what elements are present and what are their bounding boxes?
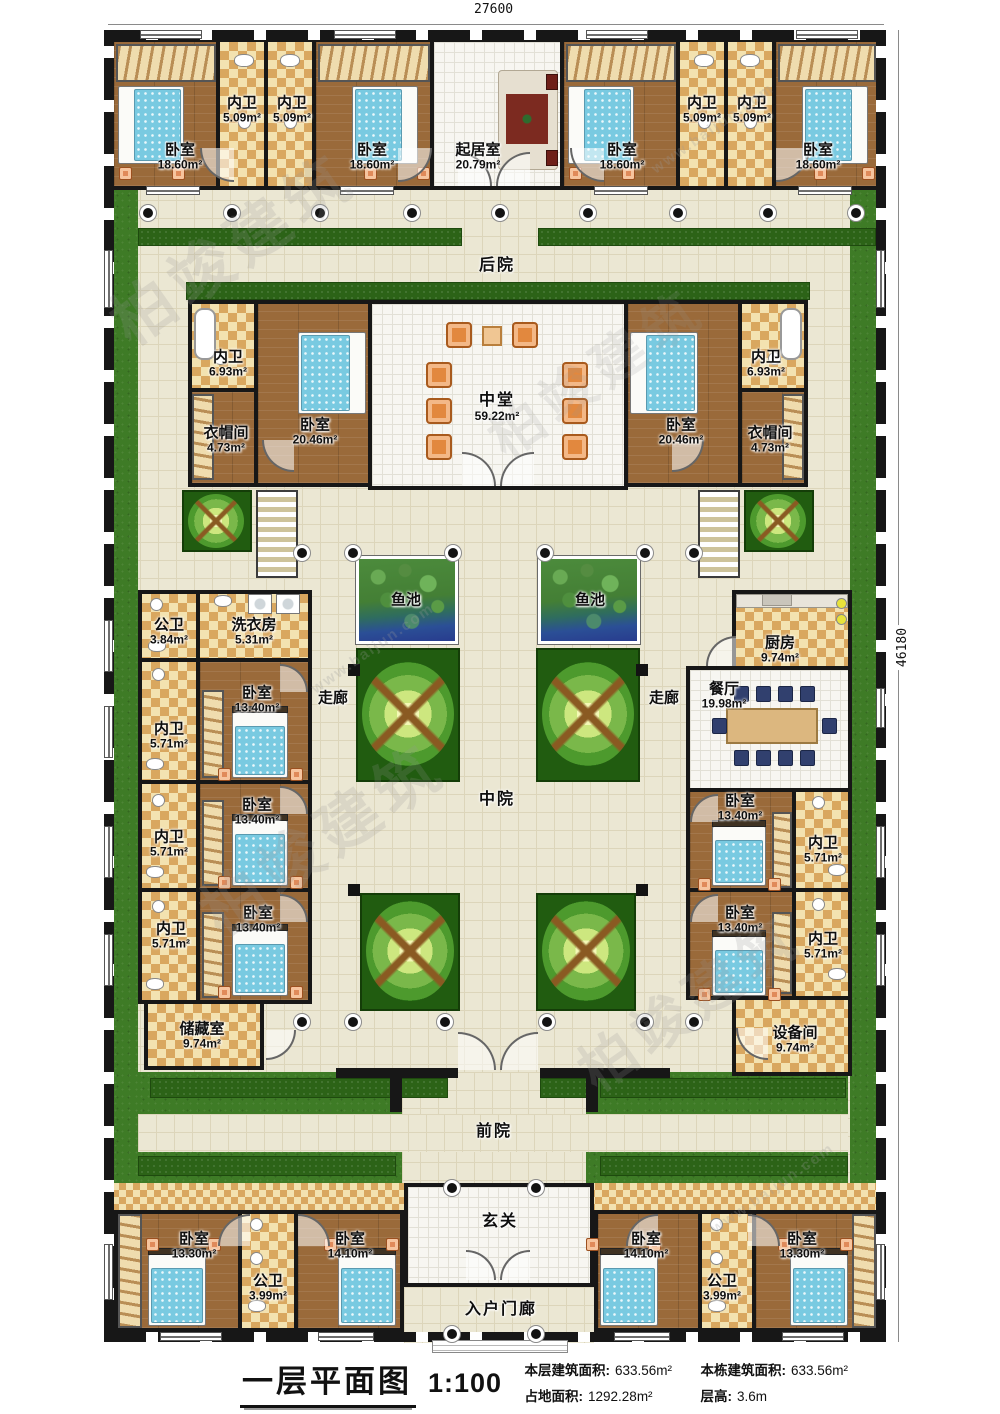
column-dot: [224, 205, 240, 221]
rug: [506, 94, 548, 144]
room-label-bedroom: 卧室14.10m²: [328, 1230, 373, 1261]
courtyard-wall: [540, 1068, 670, 1078]
area-name: 玄关: [482, 1213, 518, 1231]
quilt: [341, 1268, 393, 1323]
room-name: 卧室: [235, 796, 280, 813]
column-dot: [294, 1014, 310, 1030]
window: [104, 934, 113, 986]
window: [614, 1332, 670, 1341]
room-name: 卧室: [158, 141, 203, 158]
stat-label: 层高:: [701, 1389, 733, 1404]
room-label-bath: 内卫5.71m²: [804, 834, 842, 865]
column-dot: [312, 205, 328, 221]
wardrobe: [118, 1214, 142, 1328]
nightstand: [218, 986, 231, 999]
room-name: 设备间: [772, 1024, 817, 1041]
armchair: [562, 434, 588, 460]
dining-chair: [800, 686, 815, 702]
stairs: [256, 490, 298, 578]
room-label-dining: 餐厅19.98m²: [702, 680, 747, 711]
basin-icon: [812, 796, 825, 809]
quilt: [235, 944, 285, 993]
room-name: 中堂: [475, 392, 520, 410]
basin-icon: [250, 1252, 263, 1265]
nightstand: [290, 876, 303, 889]
window: [586, 30, 648, 39]
nightstand: [698, 988, 711, 1001]
room-label-bath: 内卫5.71m²: [152, 920, 190, 951]
room-label-bedroom: 卧室18.60m²: [600, 141, 645, 172]
room-area: 13.30m²: [780, 1248, 825, 1262]
room-area: 5.09m²: [273, 112, 311, 126]
room-label-bedroom: 卧室20.46m²: [659, 416, 704, 447]
column-dot: [686, 545, 702, 561]
column-dot: [294, 545, 310, 561]
window: [318, 1332, 374, 1341]
room-label-bedroom: 卧室13.30m²: [780, 1230, 825, 1261]
yard-wall-stub: [390, 1068, 402, 1112]
window: [876, 250, 885, 308]
room-area: 9.74m²: [179, 1038, 224, 1052]
sink-icon: [740, 54, 760, 67]
toilet-icon: [146, 866, 164, 878]
column-dot: [444, 1180, 460, 1196]
window: [104, 826, 113, 878]
hedge-row: [138, 228, 462, 246]
perimeter-wall-right: [876, 30, 886, 1342]
room-area: 13.40m²: [236, 922, 281, 936]
column-square: [348, 664, 360, 676]
side-table: [546, 150, 558, 166]
room-name: 卧室: [600, 141, 645, 158]
tree-icon: [542, 662, 634, 766]
room-name: 卧室: [796, 141, 841, 158]
dimension-line-top: [108, 24, 884, 25]
wardrobe: [318, 44, 430, 82]
area-label-midyard: 中院: [479, 791, 515, 809]
wardrobe: [202, 800, 224, 886]
window: [798, 186, 852, 195]
double-bed: [600, 1254, 658, 1326]
room-area: 20.79m²: [455, 159, 500, 173]
tea-table: [482, 326, 502, 346]
room-area: 9.74m²: [772, 1042, 817, 1056]
nightstand: [768, 878, 781, 891]
column-dot: [760, 205, 776, 221]
quilt: [301, 335, 350, 411]
room-area: 5.71m²: [150, 846, 188, 860]
room-area: 5.31m²: [231, 634, 276, 648]
window: [796, 30, 858, 39]
room-label-bath: 内卫5.09m²: [223, 94, 261, 125]
room-name: 卧室: [718, 904, 763, 921]
tree-icon: [542, 901, 630, 1001]
window: [340, 186, 394, 195]
area-name: 鱼池: [575, 591, 605, 608]
room-name: 餐厅: [702, 680, 747, 697]
double-bed: [338, 1254, 396, 1326]
toilet-icon: [146, 758, 164, 770]
room-label-bedroom: 卧室13.40m²: [235, 684, 280, 715]
hedge-row: [150, 1078, 396, 1098]
room-label-bedroom: 卧室13.40m²: [718, 904, 763, 935]
stat-label: 本层建筑面积:: [525, 1363, 611, 1378]
armchair: [426, 362, 452, 388]
column-dot: [445, 545, 461, 561]
room-label-living: 起居室20.79m²: [455, 141, 500, 172]
room-area: 20.46m²: [659, 434, 704, 448]
stairs: [698, 490, 740, 578]
room-name: 储藏室: [179, 1020, 224, 1037]
room-area: 3.99m²: [703, 1290, 741, 1304]
column-dot: [492, 205, 508, 221]
tree-icon: [366, 901, 454, 1001]
dining-chair: [822, 718, 837, 734]
room-name: 卧室: [624, 1230, 669, 1247]
hedge-row: [396, 1078, 448, 1098]
quilt: [151, 1268, 203, 1323]
window: [876, 688, 885, 728]
room-name: 内卫: [223, 94, 261, 111]
tree-icon: [750, 494, 806, 548]
toilet-icon: [146, 978, 164, 990]
room-area: 4.73m²: [203, 442, 248, 456]
room-area: 18.60m²: [350, 159, 395, 173]
room-label-bath: 内卫5.09m²: [733, 94, 771, 125]
plan-scale: 1:100: [428, 1368, 502, 1399]
nightstand: [218, 768, 231, 781]
sink-icon: [234, 54, 254, 67]
room-name: 公卫: [249, 1272, 287, 1289]
room-name: 公卫: [150, 616, 188, 633]
room-name: 洗衣房: [231, 616, 276, 633]
column-dot: [528, 1326, 544, 1342]
wardrobe: [116, 44, 216, 82]
room-name: 卧室: [236, 904, 281, 921]
room-label-bedroom: 卧室13.40m²: [236, 904, 281, 935]
perimeter-wall-top: [104, 30, 886, 40]
sink-icon: [280, 54, 300, 67]
armchair: [512, 322, 538, 348]
nightstand: [768, 988, 781, 1001]
area-name: 鱼池: [391, 591, 421, 608]
stat-label: 占地面积:: [525, 1389, 584, 1404]
area-label-foyer: 玄关: [482, 1213, 518, 1231]
grass-strip-right: [850, 190, 876, 1186]
room-name: 卧室: [293, 416, 338, 433]
wardrobe: [772, 812, 792, 888]
room-area: 18.60m²: [600, 159, 645, 173]
range-hood-icon: [762, 594, 792, 606]
room-area: 6.93m²: [747, 366, 785, 380]
room-name: 卧室: [780, 1230, 825, 1247]
dining-table: [726, 708, 818, 744]
stat-value: 3.6m: [737, 1389, 767, 1404]
area-name: 入户门廊: [465, 1301, 537, 1319]
basin-icon: [152, 794, 165, 807]
room-name: 内卫: [150, 720, 188, 737]
nightstand: [146, 1238, 159, 1251]
column-dot: [444, 1326, 460, 1342]
room-name: 公卫: [703, 1272, 741, 1289]
hedge-row: [186, 282, 810, 300]
double-bed: [298, 332, 366, 414]
perimeter-wall-left: [104, 30, 114, 1342]
column-dot: [404, 205, 420, 221]
basin-icon: [812, 898, 825, 911]
caption-bar: 一层平面图1:100 本层建筑面积:633.56m² 占地面积:1292.28m…: [240, 1356, 960, 1412]
room-area: 5.71m²: [804, 852, 842, 866]
window: [594, 186, 648, 195]
nightstand: [290, 986, 303, 999]
armchair: [562, 398, 588, 424]
stove-burner-icon: [836, 598, 847, 609]
stove-burner-icon: [836, 614, 847, 625]
room-name: 内卫: [683, 94, 721, 111]
nightstand: [698, 878, 711, 891]
room-area: 9.74m²: [761, 652, 799, 666]
column-square: [636, 664, 648, 676]
quilt: [793, 1268, 845, 1323]
room-label-bedroom: 卧室13.40m²: [235, 796, 280, 827]
room-area: 5.09m²: [733, 112, 771, 126]
grass-strip-left: [112, 190, 138, 1186]
room-area: 5.71m²: [804, 948, 842, 962]
room-label-bedroom: 卧室20.46m²: [293, 416, 338, 447]
hedge-row: [600, 1156, 848, 1176]
area-name: 走廊: [318, 689, 348, 706]
washer-icon: [248, 594, 272, 614]
room-name: 内卫: [209, 348, 247, 365]
stat-label: 本栋建筑面积:: [701, 1363, 787, 1378]
room-area: 18.60m²: [158, 159, 203, 173]
basin-icon: [152, 668, 165, 681]
area-label-porch: 入户门廊: [465, 1301, 537, 1319]
hedge-row: [600, 1078, 846, 1098]
room-area: 13.40m²: [235, 814, 280, 828]
armchair: [562, 362, 588, 388]
armchair: [426, 434, 452, 460]
caption-title-wrap: 一层平面图1:100: [240, 1356, 502, 1408]
room-label-bedroom: 卧室13.30m²: [172, 1230, 217, 1261]
column-dot: [537, 545, 553, 561]
column-dot: [345, 545, 361, 561]
room-name: 衣帽间: [203, 424, 248, 441]
side-table: [546, 74, 558, 90]
armchair: [426, 398, 452, 424]
tree-icon: [362, 662, 454, 766]
room-label-bath: 内卫6.93m²: [747, 348, 785, 379]
room-area: 5.71m²: [150, 738, 188, 752]
double-bed: [712, 826, 766, 886]
area-label-corridor: 走廊: [649, 689, 679, 706]
column-dot: [528, 1180, 544, 1196]
area-name: 后院: [479, 257, 515, 275]
room-label-hall: 中堂59.22m²: [475, 392, 520, 424]
room-label-bath: 内卫5.71m²: [804, 930, 842, 961]
room-area: 4.73m²: [747, 442, 792, 456]
area-label-corridor: 走廊: [318, 689, 348, 706]
quilt: [715, 840, 763, 883]
wardrobe: [202, 690, 224, 778]
column-square: [348, 884, 360, 896]
room-area: 20.46m²: [293, 434, 338, 448]
room-area: 6.93m²: [209, 366, 247, 380]
room-label-bedroom: 卧室18.60m²: [796, 141, 841, 172]
area-label-frontyard: 前院: [476, 1123, 512, 1141]
room-area: 19.98m²: [702, 698, 747, 712]
area-label-pond: 鱼池: [575, 591, 605, 608]
room-label-bath: 内卫5.71m²: [150, 828, 188, 859]
dining-chair: [734, 750, 749, 766]
area-name: 中院: [479, 791, 515, 809]
room-label-wc: 公卫3.84m²: [150, 616, 188, 647]
double-bed: [712, 936, 766, 996]
column-dot: [637, 545, 653, 561]
stat-value: 633.56m²: [615, 1363, 672, 1378]
quilt: [235, 834, 285, 883]
wardrobe: [772, 912, 792, 994]
basin-icon: [150, 598, 163, 611]
room-area: 59.22m²: [475, 410, 520, 424]
yard-wall-stub: [586, 1068, 598, 1112]
stat-floor-height: 层高:3.6m: [701, 1385, 849, 1405]
room-name: 内卫: [273, 94, 311, 111]
plan-title: 一层平面图: [240, 1356, 416, 1408]
caption-stats-col-2: 本栋建筑面积:633.56m² 层高:3.6m: [701, 1356, 849, 1405]
stat-total-area: 本栋建筑面积:633.56m²: [701, 1359, 849, 1379]
basin-icon: [710, 1252, 723, 1265]
dimension-label-top: 27600: [471, 2, 516, 17]
dining-chair: [756, 686, 771, 702]
wardrobe: [778, 44, 876, 82]
nightstand: [218, 876, 231, 889]
stat-land-area: 占地面积:1292.28m²: [525, 1385, 673, 1405]
room-label-bath: 内卫5.09m²: [683, 94, 721, 125]
window: [104, 706, 113, 758]
area-name: 走廊: [649, 689, 679, 706]
window: [876, 826, 885, 878]
room-name: 卧室: [718, 792, 763, 809]
room-name: 卧室: [350, 141, 395, 158]
hedge-row: [540, 1078, 592, 1098]
room-area: 3.84m²: [150, 634, 188, 648]
room-area: 5.09m²: [223, 112, 261, 126]
double-bed: [148, 1254, 206, 1326]
washer-icon: [276, 594, 300, 614]
room-name: 内卫: [733, 94, 771, 111]
room-area: 13.40m²: [718, 922, 763, 936]
column-dot: [686, 1014, 702, 1030]
caption-stats-col-1: 本层建筑面积:633.56m² 占地面积:1292.28m²: [525, 1356, 673, 1405]
room-name: 衣帽间: [747, 424, 792, 441]
room-label-bath: 内卫5.71m²: [150, 720, 188, 751]
stat-value: 633.56m²: [791, 1363, 848, 1378]
room-area: 5.09m²: [683, 112, 721, 126]
room-name: 起居室: [455, 141, 500, 158]
room-area: 3.99m²: [249, 1290, 287, 1304]
hedge-row: [538, 228, 876, 246]
area-label-pond: 鱼池: [391, 591, 421, 608]
room-label-bath: 内卫6.93m²: [209, 348, 247, 379]
column-dot: [848, 205, 864, 221]
room-label-wc: 公卫3.99m²: [703, 1272, 741, 1303]
room-label-bedroom: 卧室18.60m²: [158, 141, 203, 172]
basin-icon: [152, 900, 165, 913]
armchair: [446, 322, 472, 348]
tree-icon: [188, 494, 244, 548]
room-label-kitchen: 厨房9.74m²: [761, 634, 799, 665]
quilt: [235, 726, 285, 775]
hedge-row: [138, 1156, 396, 1176]
window: [160, 1332, 222, 1341]
nightstand: [586, 1238, 599, 1251]
room-area: 14.10m²: [624, 1248, 669, 1262]
room-label-bedroom: 卧室13.40m²: [718, 792, 763, 823]
double-bed: [232, 930, 288, 996]
room-name: 内卫: [804, 834, 842, 851]
room-name: 内卫: [804, 930, 842, 947]
window: [104, 620, 113, 672]
room-label-equipment: 设备间9.74m²: [772, 1024, 817, 1055]
room-name: 卧室: [235, 684, 280, 701]
room-label-bedroom: 卧室18.60m²: [350, 141, 395, 172]
stat-floor-area: 本层建筑面积:633.56m²: [525, 1359, 673, 1379]
column-dot: [345, 1014, 361, 1030]
quilt: [603, 1268, 655, 1323]
room-label-laundry: 洗衣房5.31m²: [231, 616, 276, 647]
dining-chair: [712, 718, 727, 734]
dimension-line-right: [898, 30, 899, 1342]
sink-icon: [694, 54, 714, 67]
room-label-wc: 公卫3.99m²: [249, 1272, 287, 1303]
room-name: 厨房: [761, 634, 799, 651]
room-foyer: [404, 1183, 594, 1287]
room-label-cloak: 衣帽间4.73m²: [203, 424, 248, 455]
room-name: 内卫: [152, 920, 190, 937]
area-label-backyard: 后院: [479, 257, 515, 275]
room-name: 内卫: [747, 348, 785, 365]
wardrobe: [566, 44, 676, 82]
room-name: 卧室: [172, 1230, 217, 1247]
window: [782, 1332, 844, 1341]
column-dot: [140, 205, 156, 221]
column-dot: [637, 1014, 653, 1030]
sink-icon: [214, 595, 232, 607]
nightstand: [119, 167, 132, 180]
room-label-bedroom: 卧室14.10m²: [624, 1230, 669, 1261]
toilet-icon: [828, 864, 846, 876]
double-bed: [790, 1254, 848, 1326]
double-bed: [232, 712, 288, 778]
room-area: 18.60m²: [796, 159, 841, 173]
room-name: 卧室: [659, 416, 704, 433]
room-label-bath: 内卫5.09m²: [273, 94, 311, 125]
dining-chair: [778, 750, 793, 766]
dining-chair: [778, 686, 793, 702]
window: [876, 1244, 885, 1300]
window: [146, 186, 200, 195]
room-name: 内卫: [150, 828, 188, 845]
double-bed: [630, 332, 698, 414]
kitchen-counter: [736, 594, 848, 608]
toilet-icon: [828, 968, 846, 980]
basin-icon: [710, 1218, 723, 1231]
floor-plan: 卧室18.60m² 内卫5.09m² 内卫5.09m² 卧室18.60m² 起居…: [0, 0, 1000, 1414]
nightstand: [862, 167, 875, 180]
area-name: 前院: [476, 1123, 512, 1141]
room-area: 13.40m²: [718, 810, 763, 824]
